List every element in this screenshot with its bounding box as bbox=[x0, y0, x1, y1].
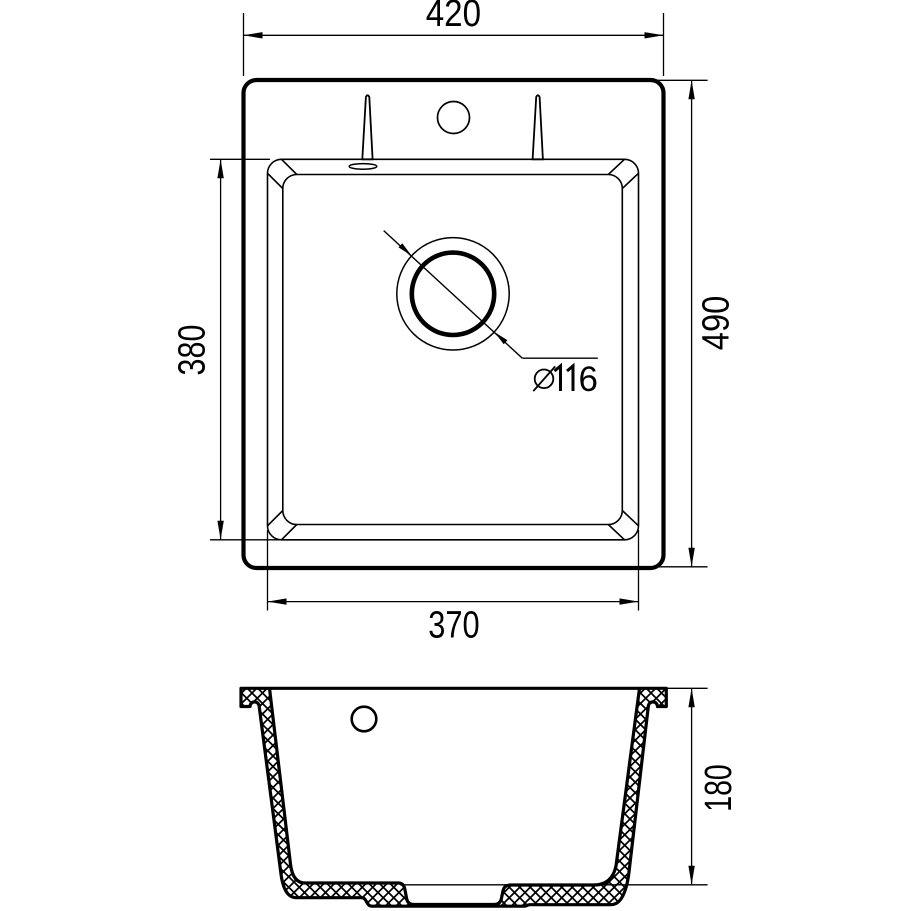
svg-text:420: 420 bbox=[426, 0, 481, 35]
svg-text:380: 380 bbox=[172, 325, 214, 376]
svg-text:490: 490 bbox=[696, 296, 738, 350]
svg-text:6: 6 bbox=[579, 360, 598, 399]
svg-text:370: 370 bbox=[428, 605, 479, 647]
svg-text:180: 180 bbox=[698, 764, 740, 812]
